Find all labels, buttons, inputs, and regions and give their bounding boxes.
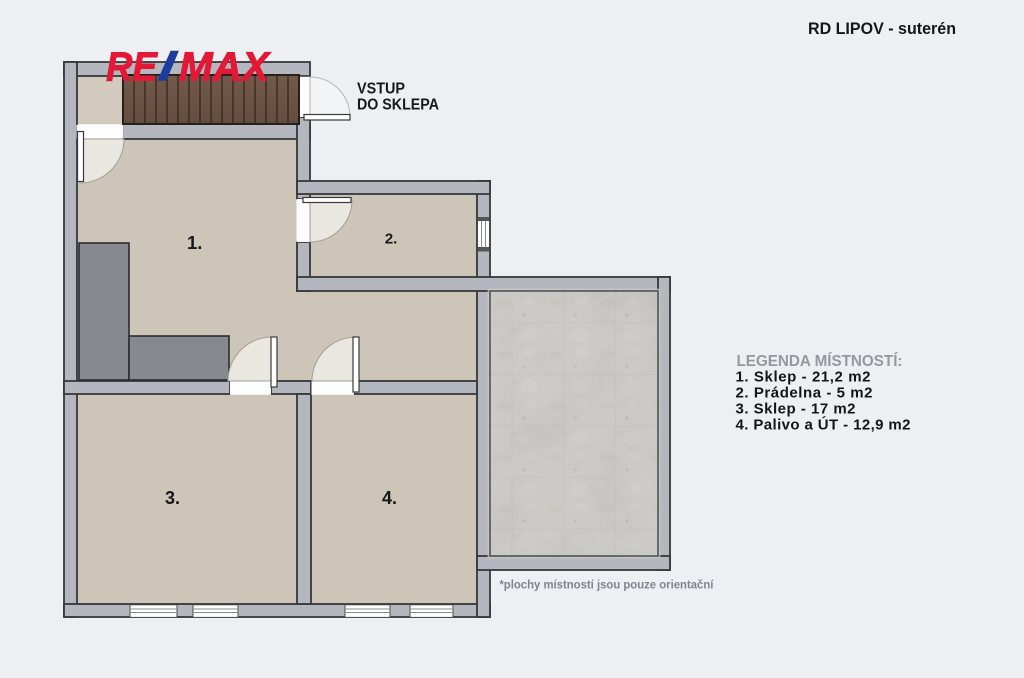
svg-text:2.: 2.	[385, 231, 398, 248]
svg-text:LEGENDA MÍSTNOSTÍ:: LEGENDA MÍSTNOSTÍ:	[737, 353, 903, 370]
svg-text:VSTUP: VSTUP	[357, 81, 405, 98]
svg-text:MAX: MAX	[179, 44, 272, 90]
svg-text:1.: 1.	[187, 232, 202, 253]
svg-text:DO SKLEPA: DO SKLEPA	[357, 97, 439, 114]
svg-text:2. Prádelna - 5 m2: 2. Prádelna - 5 m2	[736, 385, 873, 402]
svg-text:4.: 4.	[382, 488, 397, 508]
svg-text:RD LIPOV - suterén: RD LIPOV - suterén	[808, 19, 956, 38]
svg-text:1. Sklep - 21,2 m2: 1. Sklep - 21,2 m2	[736, 369, 871, 386]
svg-text:*plochy místností jsou pouze o: *plochy místností jsou pouze orientační	[499, 578, 714, 592]
svg-text:4. Palivo a ÚT - 12,9 m2: 4. Palivo a ÚT - 12,9 m2	[736, 416, 911, 434]
svg-text:RE: RE	[106, 44, 158, 90]
svg-text:3.: 3.	[165, 488, 180, 508]
svg-text:3. Sklep - 17 m2: 3. Sklep - 17 m2	[736, 401, 856, 418]
